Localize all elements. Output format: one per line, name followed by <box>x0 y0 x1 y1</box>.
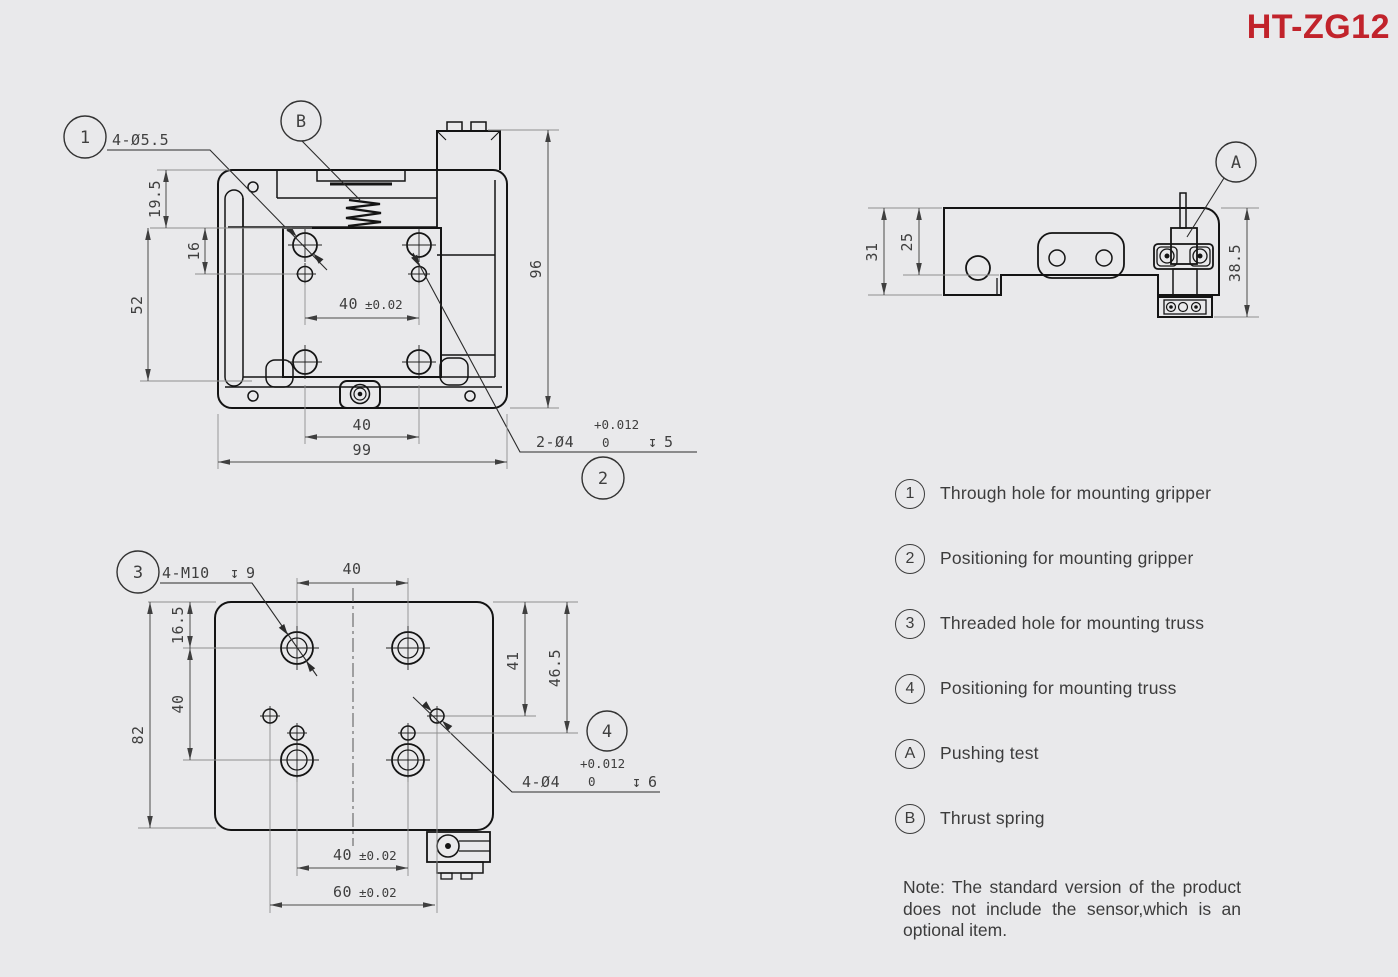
depth-symbol-icon: ↧ <box>230 564 240 582</box>
tolerance-plus: +0.012 <box>594 417 639 432</box>
legend-symbol-a: A <box>895 739 925 769</box>
legend-item-positioning-gripper: 2 Positioning for mounting gripper <box>895 544 1211 573</box>
tolerance-zero: 0 <box>602 435 610 450</box>
callout-b: B <box>296 112 306 132</box>
sensor-rod <box>1180 193 1186 228</box>
dim-60: 60 <box>333 883 352 901</box>
dim-40-bottom: 40 <box>352 416 371 434</box>
dim-25: 25 <box>898 232 916 251</box>
sensor-tabs <box>447 122 486 131</box>
bottom-view-dimensions: 40 16.5 40 82 41 46.5 40 ±0.02 60 ±0.02 <box>129 560 578 913</box>
depth-symbol-icon: ↧ <box>648 433 658 451</box>
tolerance-zero: 0 <box>588 774 596 789</box>
thrust-spring <box>346 200 381 226</box>
dim-40-top: 40 <box>342 560 361 578</box>
dim-16: 16 <box>185 241 203 260</box>
dim-31: 31 <box>863 242 881 261</box>
callout-2: 2 <box>598 469 608 489</box>
threaded-holes <box>281 632 424 776</box>
side-connector <box>427 832 490 879</box>
datasheet-page: 1 B 2 4-Ø5.5 2-Ø4 +0.012 0 ↧ 5 19.5 16 5… <box>0 0 1398 977</box>
side-view-drawing <box>944 193 1219 317</box>
callout-4: 4 <box>602 722 612 742</box>
legend-label-3: Threaded hole for mounting truss <box>940 613 1204 634</box>
legend-item-threaded-hole: 3 Threaded hole for mounting truss <box>895 609 1211 638</box>
dim-38-5: 38.5 <box>1226 244 1244 282</box>
dim-40-bottom-tol: ±0.02 <box>359 848 397 863</box>
legend-label-a: Pushing test <box>940 743 1039 764</box>
product-title: HT-ZG12 <box>1060 8 1390 47</box>
legend-item-thrust-spring: B Thrust spring <box>895 804 1211 833</box>
dim-82: 82 <box>129 725 147 744</box>
threaded-hole-label: 4-M10 <box>162 564 210 582</box>
dim-52: 52 <box>128 295 146 314</box>
dim-19-5: 19.5 <box>146 180 164 218</box>
side-view-callouts: A <box>1187 142 1256 237</box>
note-text: Note: The standard version of the produc… <box>903 877 1241 942</box>
legend-symbol-3: 3 <box>895 609 925 639</box>
legend-item-through-hole: 1 Through hole for mounting gripper <box>895 479 1211 508</box>
dim-96: 96 <box>527 259 545 278</box>
dim-16-5: 16.5 <box>169 606 187 644</box>
depth-value: 5 <box>664 433 674 451</box>
front-view-drawing <box>218 122 507 408</box>
callout-a: A <box>1231 153 1241 173</box>
depth-symbol-icon: ↧ <box>632 773 642 791</box>
bottom-view-callouts: 3 4 4-M10 ↧ 9 4-Ø4 +0.012 0 ↧ 6 <box>117 551 660 792</box>
dim-60-tol: ±0.02 <box>359 885 397 900</box>
dim-40-center-tol: ±0.02 <box>365 297 403 312</box>
legend: 1 Through hole for mounting gripper 2 Po… <box>895 479 1211 869</box>
dim-40-bottom: 40 <box>333 846 352 864</box>
legend-label-4: Positioning for mounting truss <box>940 678 1177 699</box>
legend-symbol-4: 4 <box>895 674 925 704</box>
truss-positioning-label: 4-Ø4 <box>522 773 560 791</box>
dim-40-left: 40 <box>169 694 187 713</box>
dim-46-5: 46.5 <box>546 649 564 687</box>
legend-label-2: Positioning for mounting gripper <box>940 548 1194 569</box>
legend-label-b: Thrust spring <box>940 808 1045 829</box>
through-hole-label: 4-Ø5.5 <box>112 131 169 149</box>
legend-symbol-1: 1 <box>895 479 925 509</box>
callout-3: 3 <box>133 563 143 583</box>
legend-label-1: Through hole for mounting gripper <box>940 483 1211 504</box>
legend-item-positioning-truss: 4 Positioning for mounting truss <box>895 674 1211 703</box>
callout-1: 1 <box>80 128 90 148</box>
dim-41: 41 <box>504 651 522 670</box>
sensor-assembly <box>1154 193 1213 317</box>
legend-symbol-b: B <box>895 804 925 834</box>
depth-value: 6 <box>648 773 658 791</box>
dim-99: 99 <box>352 441 371 459</box>
legend-symbol-2: 2 <box>895 544 925 574</box>
tolerance-plus: +0.012 <box>580 756 625 771</box>
positioning-hole-label: 2-Ø4 <box>536 433 574 451</box>
positioning-holes <box>298 267 427 282</box>
dim-40-center: 40 <box>339 295 358 313</box>
legend-item-pushing-test: A Pushing test <box>895 739 1211 768</box>
thread-depth-value: 9 <box>246 564 256 582</box>
